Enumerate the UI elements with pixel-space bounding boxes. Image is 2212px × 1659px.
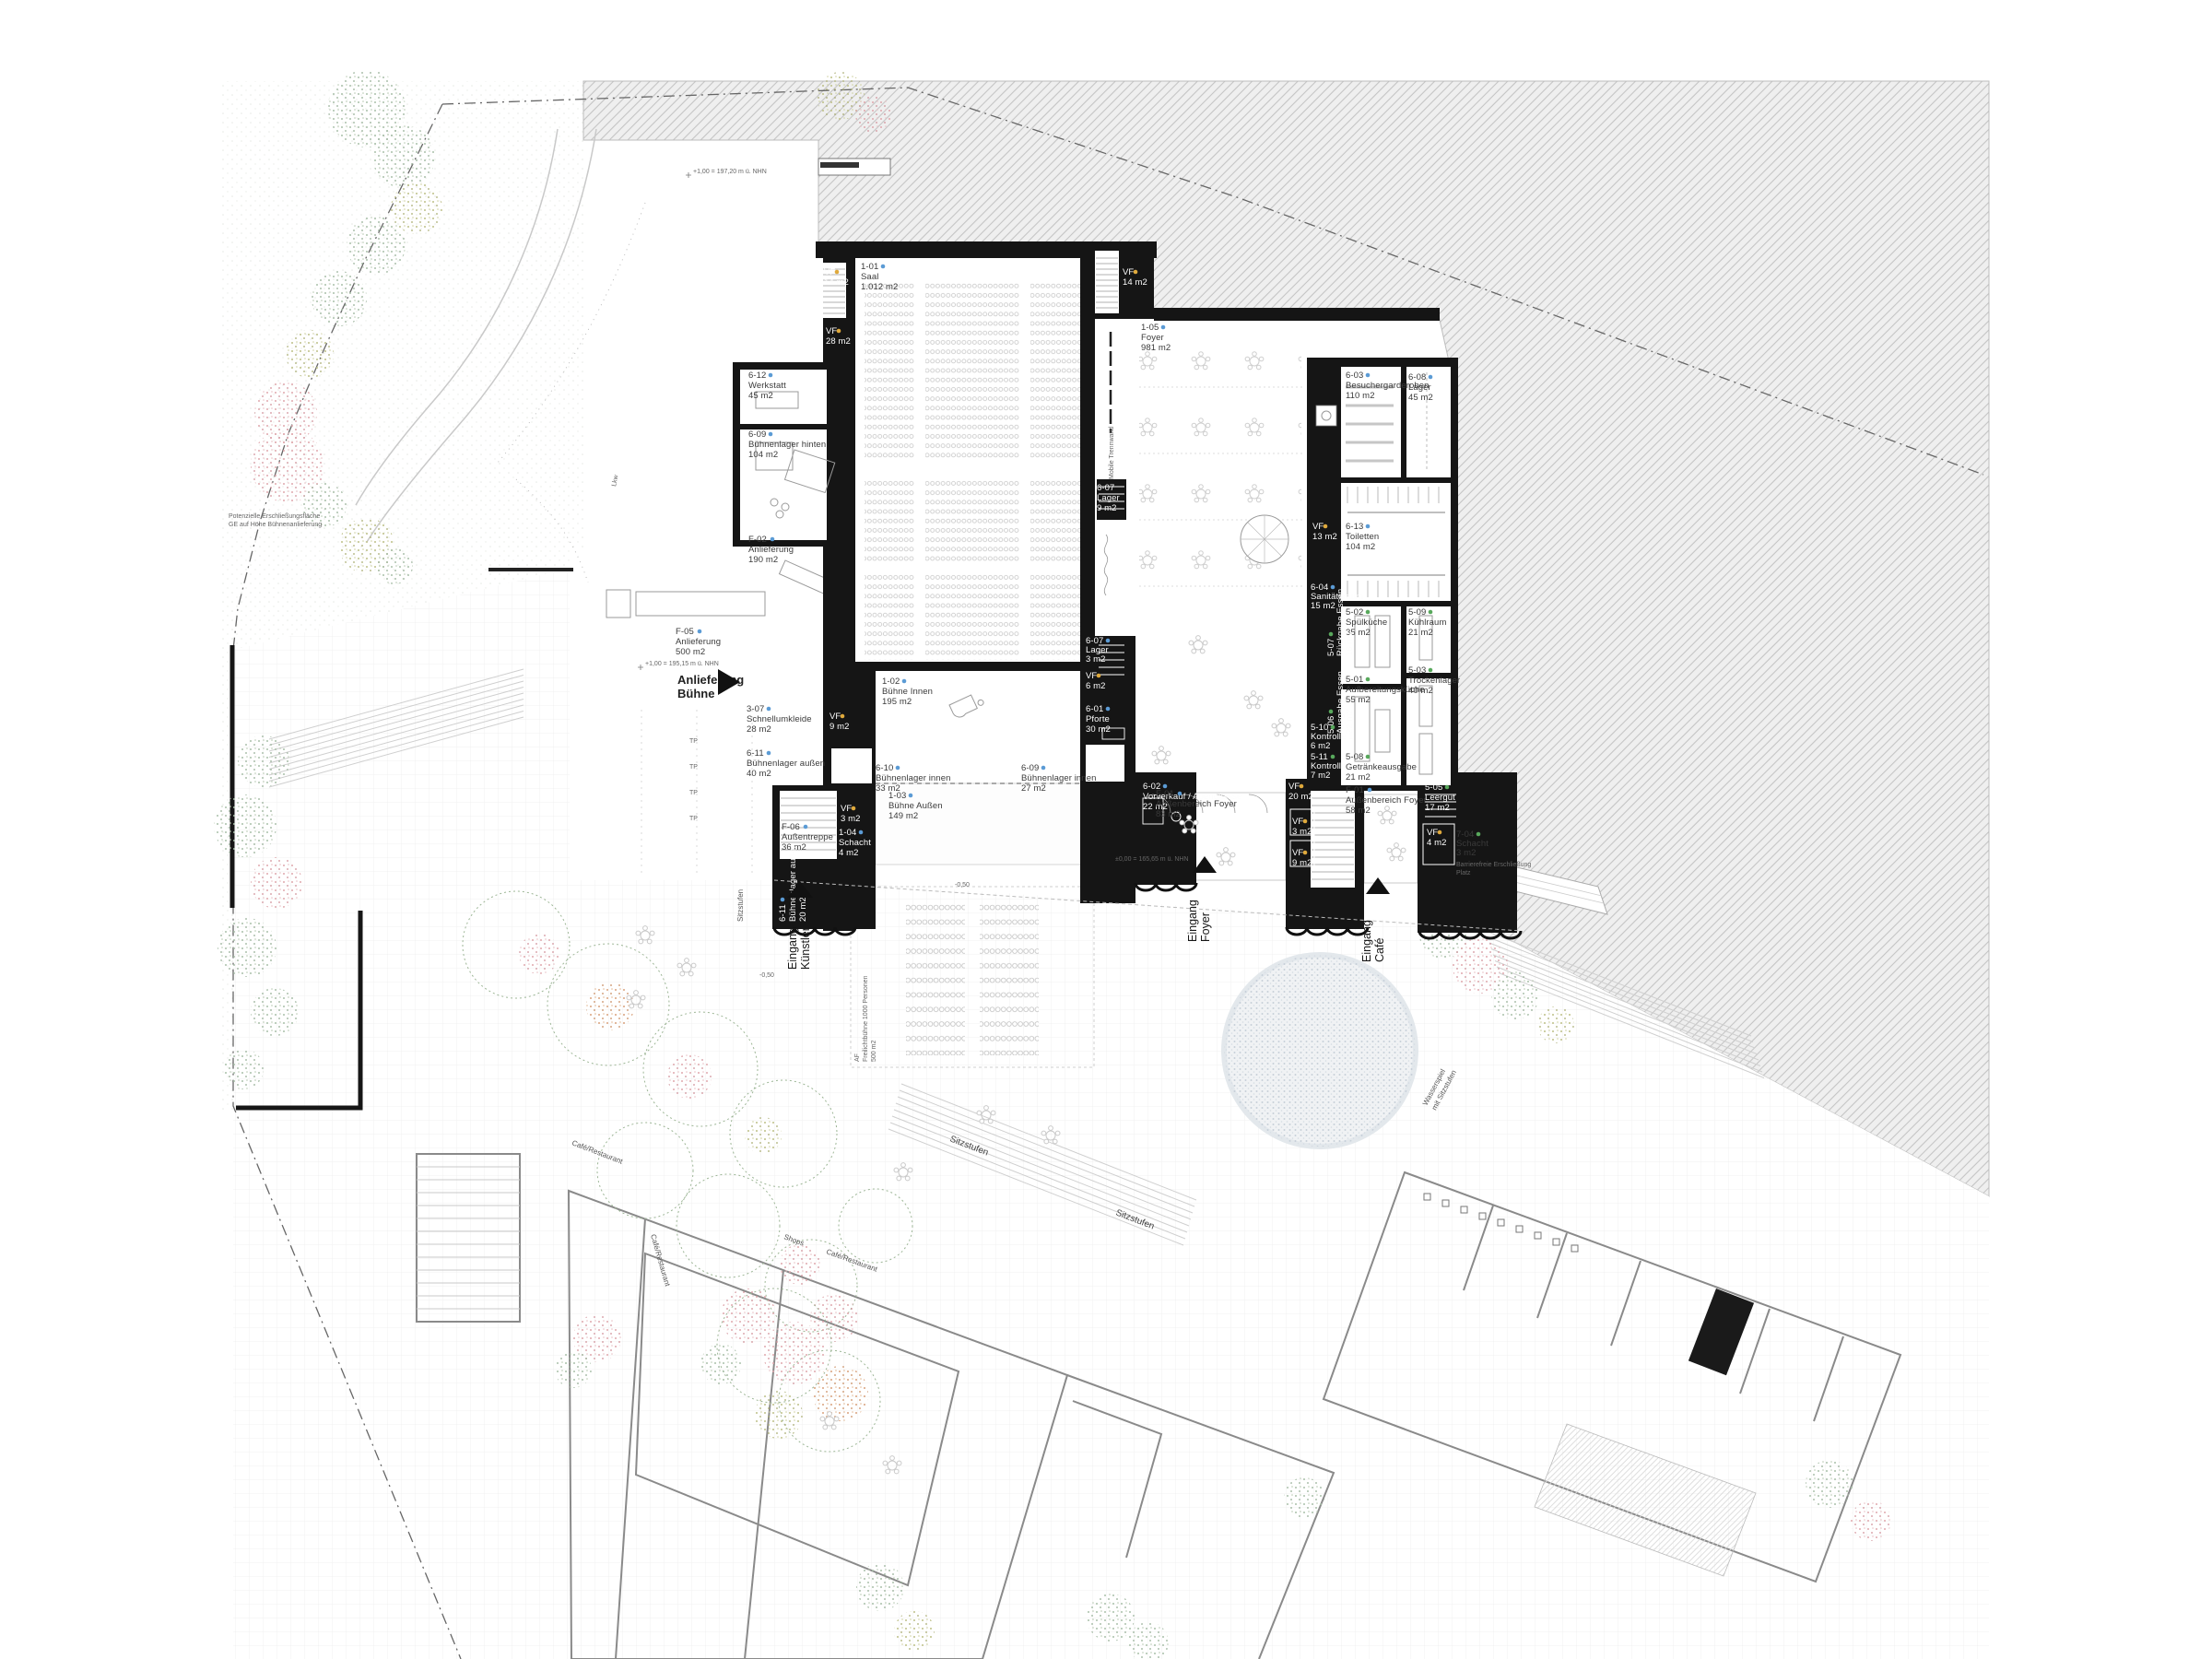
site-plan-drawing: 1-01Saal1.012 m2 1-05Foyer981 m2 1-02Büh… bbox=[0, 0, 2212, 1659]
svg-text:6-09: 6-09 bbox=[748, 429, 766, 440]
svg-text:13 m2: 13 m2 bbox=[1312, 532, 1337, 542]
svg-text:Bühne Außen: Bühne Außen bbox=[888, 801, 943, 811]
svg-text:6-09: 6-09 bbox=[1021, 763, 1039, 773]
svg-text:Sitzstufen: Sitzstufen bbox=[736, 889, 745, 922]
svg-text:Bühne Innen: Bühne Innen bbox=[882, 687, 933, 697]
svg-text:5-05: 5-05 bbox=[1425, 782, 1442, 793]
svg-text:45 m2: 45 m2 bbox=[748, 391, 773, 401]
svg-text:Mobile Trennwand: Mobile Trennwand bbox=[1109, 427, 1115, 479]
svg-text:17 m2: 17 m2 bbox=[1425, 803, 1450, 813]
svg-text:6 m2: 6 m2 bbox=[1086, 681, 1106, 691]
svg-text:Freilichtbühne 1000 Personen: Freilichtbühne 1000 Personen bbox=[863, 975, 869, 1062]
svg-text:VF: VF bbox=[1292, 848, 1303, 858]
svg-text:45 m2: 45 m2 bbox=[1408, 393, 1433, 403]
sitzstufen-label-left: Sitzstufen bbox=[736, 889, 745, 922]
svg-text:6-11: 6-11 bbox=[778, 904, 788, 922]
svg-text:Bühnenlager hinten: Bühnenlager hinten bbox=[748, 440, 826, 450]
svg-text:20 m2: 20 m2 bbox=[1288, 792, 1313, 802]
svg-text:±0,00 = 165,65 m ü. NHN: ±0,00 = 165,65 m ü. NHN bbox=[1115, 856, 1189, 863]
svg-text:Künstler: Künstler bbox=[799, 927, 812, 970]
svg-text:F-06: F-06 bbox=[782, 822, 800, 832]
svg-text:104 m2: 104 m2 bbox=[1346, 542, 1375, 552]
svg-text:VF: VF bbox=[1292, 817, 1303, 827]
svg-text:-0,50: -0,50 bbox=[759, 972, 774, 979]
svg-text:Foyer: Foyer bbox=[1199, 912, 1212, 942]
svg-text:Barrierefreie Erschließung: Barrierefreie Erschließung bbox=[1456, 862, 1531, 868]
svg-text:6 m2: 6 m2 bbox=[1311, 741, 1331, 751]
svg-text:21 m2: 21 m2 bbox=[1346, 772, 1371, 782]
svg-text:F-02: F-02 bbox=[748, 535, 767, 545]
svg-text:Werkstatt: Werkstatt bbox=[748, 381, 786, 391]
svg-text:Bühnenlager innen: Bühnenlager innen bbox=[876, 773, 950, 783]
svg-text:6-03: 6-03 bbox=[1346, 371, 1363, 381]
svg-text:Toiletten: Toiletten bbox=[1346, 532, 1379, 542]
svg-text:-0,50: -0,50 bbox=[955, 882, 970, 888]
svg-text:149 m2: 149 m2 bbox=[888, 811, 918, 821]
svg-text:6-01: 6-01 bbox=[1086, 704, 1103, 714]
svg-text:Eingang: Eingang bbox=[786, 927, 799, 970]
svg-text:190 m2: 190 m2 bbox=[748, 555, 778, 565]
svg-text:Außenbereich Foyer: Außenbereich Foyer bbox=[1156, 799, 1237, 809]
svg-text:981 m2: 981 m2 bbox=[1141, 343, 1171, 353]
svg-text:3 m2: 3 m2 bbox=[841, 814, 861, 824]
svg-text:Außenbereich Foyer: Außenbereich Foyer bbox=[1346, 795, 1427, 806]
svg-text:83 m2: 83 m2 bbox=[1156, 809, 1181, 819]
svg-text:Anlieferung: Anlieferung bbox=[676, 637, 721, 647]
svg-text:14 m2: 14 m2 bbox=[824, 277, 849, 288]
svg-text:15 m2: 15 m2 bbox=[1311, 601, 1335, 611]
water-feature bbox=[1224, 955, 1416, 1147]
svg-text:6-07: 6-07 bbox=[1097, 483, 1114, 493]
svg-text:6-08: 6-08 bbox=[1408, 372, 1426, 382]
svg-text:58 m2: 58 m2 bbox=[1346, 806, 1371, 816]
svg-text:6-12: 6-12 bbox=[748, 371, 766, 381]
mobile-trennwand-label: Mobile Trennwand bbox=[1109, 427, 1115, 479]
svg-text:55 m2: 55 m2 bbox=[1346, 695, 1371, 705]
svg-text:28 m2: 28 m2 bbox=[747, 724, 771, 735]
svg-text:VF: VF bbox=[1288, 782, 1300, 792]
svg-text:VF: VF bbox=[1086, 671, 1097, 681]
svg-text:Außentreppe: Außentreppe bbox=[782, 832, 833, 842]
svg-text:+1,00 = 197,20 m ü. NHN: +1,00 = 197,20 m ü. NHN bbox=[693, 169, 767, 175]
svg-text:500 m2: 500 m2 bbox=[871, 1041, 877, 1062]
svg-text:VF: VF bbox=[1312, 522, 1324, 532]
svg-text:40 m2: 40 m2 bbox=[747, 769, 771, 779]
svg-text:110 m2: 110 m2 bbox=[1346, 391, 1375, 401]
svg-text:21 m2: 21 m2 bbox=[1408, 628, 1433, 638]
svg-text:6-10: 6-10 bbox=[876, 763, 893, 773]
svg-text:Eingang: Eingang bbox=[1186, 900, 1199, 942]
svg-text:16 m2: 16 m2 bbox=[1345, 631, 1355, 656]
room-name: Saal bbox=[861, 272, 878, 282]
svg-text:Bühnenlager außen: Bühnenlager außen bbox=[747, 759, 825, 769]
svg-text:6-13: 6-13 bbox=[1346, 522, 1363, 532]
svg-text:14 m2: 14 m2 bbox=[1123, 277, 1147, 288]
svg-text:Potenzielle Erschließungsfläch: Potenzielle Erschließungsfläche bbox=[229, 513, 320, 520]
room-area: 1.012 m2 bbox=[861, 282, 898, 292]
svg-text:3 m2: 3 m2 bbox=[1456, 848, 1477, 858]
svg-text:30 m2: 30 m2 bbox=[1086, 724, 1111, 735]
svg-text:Bühnenlager außen: Bühnenlager außen bbox=[788, 843, 798, 922]
svg-text:F-05: F-05 bbox=[676, 627, 694, 637]
svg-text:22 m2: 22 m2 bbox=[1345, 709, 1355, 734]
svg-text:F-01: F-01 bbox=[1156, 789, 1174, 799]
svg-text:27 m2: 27 m2 bbox=[1021, 783, 1046, 794]
svg-text:33 m2: 33 m2 bbox=[876, 783, 900, 794]
tp-marker: TP bbox=[689, 764, 698, 771]
svg-text:500 m2: 500 m2 bbox=[676, 647, 705, 657]
svg-text:9 m2: 9 m2 bbox=[829, 722, 850, 732]
svg-text:40 m2: 40 m2 bbox=[1408, 686, 1433, 696]
svg-text:20 m2: 20 m2 bbox=[798, 897, 808, 922]
svg-text:9 m2: 9 m2 bbox=[1292, 858, 1312, 868]
svg-text:GE auf Höhe Bühnenanlieferung: GE auf Höhe Bühnenanlieferung bbox=[229, 522, 322, 528]
svg-text:F-01: F-01 bbox=[1346, 785, 1364, 795]
svg-text:AF: AF bbox=[854, 1053, 861, 1062]
svg-text:Getränkeausgabe: Getränkeausgabe bbox=[1346, 762, 1417, 772]
room-id: 1-01 bbox=[861, 262, 878, 272]
svg-text:Eingang: Eingang bbox=[1360, 920, 1373, 962]
svg-text:5-01: 5-01 bbox=[1346, 675, 1363, 685]
svg-text:+1,00 = 195,15 m ü. NHN: +1,00 = 195,15 m ü. NHN bbox=[645, 661, 719, 667]
svg-text:Lager: Lager bbox=[1097, 493, 1120, 503]
tp-marker: TP bbox=[689, 738, 698, 745]
svg-text:28 m2: 28 m2 bbox=[826, 336, 851, 347]
svg-text:Foyer: Foyer bbox=[1141, 333, 1164, 343]
svg-text:5-08: 5-08 bbox=[1346, 752, 1363, 762]
svg-text:Schnellumkleide: Schnellumkleide bbox=[747, 714, 812, 724]
tp-marker: TP bbox=[689, 790, 698, 796]
site-plan-canvas: 1-01Saal1.012 m2 1-05Foyer981 m2 1-02Büh… bbox=[0, 0, 2212, 1659]
svg-text:Platz: Platz bbox=[1456, 870, 1471, 877]
svg-text:Spülküche: Spülküche bbox=[1346, 618, 1387, 628]
tp-marker: TP bbox=[689, 816, 698, 822]
svg-text:4 m2: 4 m2 bbox=[1427, 838, 1447, 848]
svg-text:Trockenlager: Trockenlager bbox=[1408, 676, 1460, 686]
svg-text:4 m2: 4 m2 bbox=[839, 848, 859, 858]
svg-text:5-09: 5-09 bbox=[1408, 607, 1426, 618]
svg-text:Anlieferung: Anlieferung bbox=[748, 545, 794, 555]
svg-text:Pforte: Pforte bbox=[1086, 714, 1110, 724]
svg-text:9 m2: 9 m2 bbox=[1097, 503, 1117, 513]
svg-text:5-03: 5-03 bbox=[1408, 665, 1426, 676]
svg-text:1-02: 1-02 bbox=[882, 677, 900, 687]
svg-text:5-02: 5-02 bbox=[1346, 607, 1363, 618]
svg-text:1-05: 1-05 bbox=[1141, 323, 1159, 333]
svg-text:3-07: 3-07 bbox=[747, 704, 764, 714]
room-label-pforte: 6-01Pforte30 m2 bbox=[1086, 704, 1111, 735]
svg-text:104 m2: 104 m2 bbox=[748, 450, 778, 460]
room-label-lager-45: 6-08Lager45 m2 bbox=[1408, 372, 1433, 403]
svg-text:VF: VF bbox=[824, 267, 835, 277]
svg-text:VF: VF bbox=[841, 804, 852, 814]
svg-text:Bühne: Bühne bbox=[677, 687, 714, 700]
svg-text:3 m2: 3 m2 bbox=[1086, 654, 1106, 665]
svg-text:VF: VF bbox=[829, 712, 841, 722]
svg-text:VF: VF bbox=[826, 326, 837, 336]
svg-text:Bühnenlager innen: Bühnenlager innen bbox=[1021, 773, 1096, 783]
svg-text:195 m2: 195 m2 bbox=[882, 697, 912, 707]
svg-text:Café: Café bbox=[1373, 938, 1386, 962]
svg-text:Leergut: Leergut bbox=[1425, 793, 1455, 803]
svg-text:3 m2: 3 m2 bbox=[1292, 827, 1312, 837]
svg-text:1-04: 1-04 bbox=[839, 828, 856, 838]
svg-text:6-11: 6-11 bbox=[747, 748, 764, 759]
svg-text:Schacht: Schacht bbox=[839, 838, 871, 848]
svg-text:Lager: Lager bbox=[1408, 382, 1431, 393]
svg-text:VF: VF bbox=[1123, 267, 1134, 277]
svg-text:VF: VF bbox=[1427, 828, 1438, 838]
svg-text:7 m2: 7 m2 bbox=[1311, 771, 1331, 781]
svg-text:Kühlraum: Kühlraum bbox=[1408, 618, 1446, 628]
